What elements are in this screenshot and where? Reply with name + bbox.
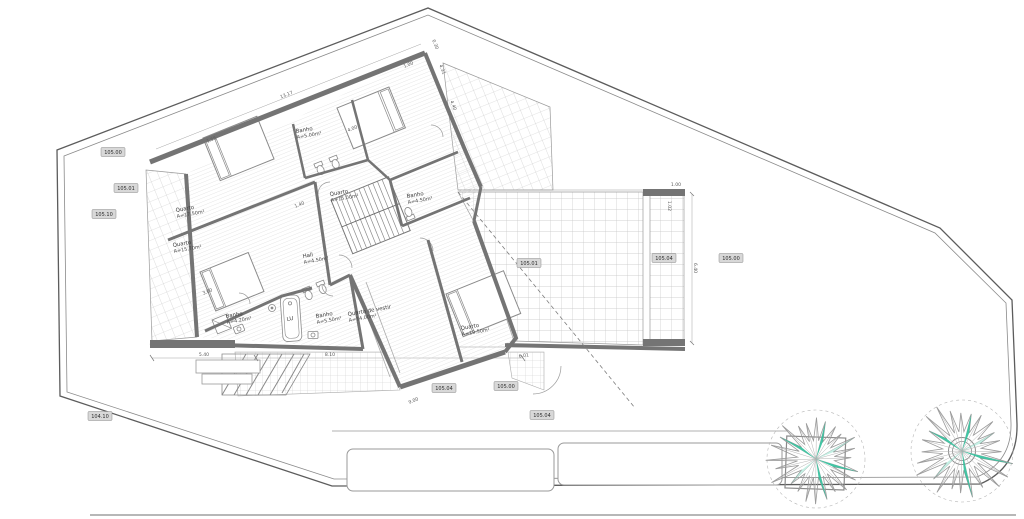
svg-text:105.04: 105.04 xyxy=(655,256,673,262)
dimension-label: 6.40 xyxy=(692,263,698,273)
svg-text:105.00: 105.00 xyxy=(104,150,122,156)
terrace-wall-cap xyxy=(643,189,685,196)
elevation-marker: 105.00 xyxy=(719,254,743,263)
dimension-label: 1.02 xyxy=(666,201,672,211)
elevation-marker: 105.01 xyxy=(114,184,138,193)
svg-text:105.10: 105.10 xyxy=(95,212,113,218)
dimension-label: 5.40 xyxy=(199,352,209,358)
svg-text:105.01: 105.01 xyxy=(520,261,538,267)
retaining-wall-bar xyxy=(150,340,235,348)
planter-box xyxy=(558,443,782,485)
elevation-marker: 105.04 xyxy=(530,411,554,420)
svg-text:105.00: 105.00 xyxy=(722,256,740,262)
floor-plan-canvas: QuartoA=17.50m²QuartoA=15.70m²BanhoA=5.0… xyxy=(0,0,1024,519)
elevation-marker: 105.00 xyxy=(494,382,518,391)
gas-point xyxy=(269,305,276,312)
terrace-wall-cap xyxy=(643,339,685,346)
room-label: LU xyxy=(286,316,294,323)
elevation-marker: 105.04 xyxy=(432,384,456,393)
floor-plan-page: QuartoA=17.50m²QuartoA=15.70m²BanhoA=5.0… xyxy=(0,0,1024,519)
elevation-marker: 105.10 xyxy=(92,210,116,219)
svg-text:105.01: 105.01 xyxy=(117,186,135,192)
paved-walkway xyxy=(235,352,400,396)
entry-step xyxy=(196,360,260,373)
svg-text:104.10: 104.10 xyxy=(91,414,109,420)
dimension-label: 1.00 xyxy=(671,182,681,188)
entry-step xyxy=(202,374,252,384)
svg-text:105.04: 105.04 xyxy=(435,386,453,392)
dimension-label: 8.10 xyxy=(325,352,335,358)
elevation-marker: 105.01 xyxy=(517,259,541,268)
elevation-marker: 105.04 xyxy=(652,254,676,263)
washbasin xyxy=(308,332,318,339)
svg-text:LU: LU xyxy=(286,316,294,323)
elevation-marker: 104.10 xyxy=(88,412,112,421)
terrace-right-strip xyxy=(650,192,684,345)
elevation-marker: 105.00 xyxy=(101,148,125,157)
svg-text:105.04: 105.04 xyxy=(533,413,551,419)
svg-text:105.00: 105.00 xyxy=(497,384,515,390)
planter-box xyxy=(347,449,554,491)
